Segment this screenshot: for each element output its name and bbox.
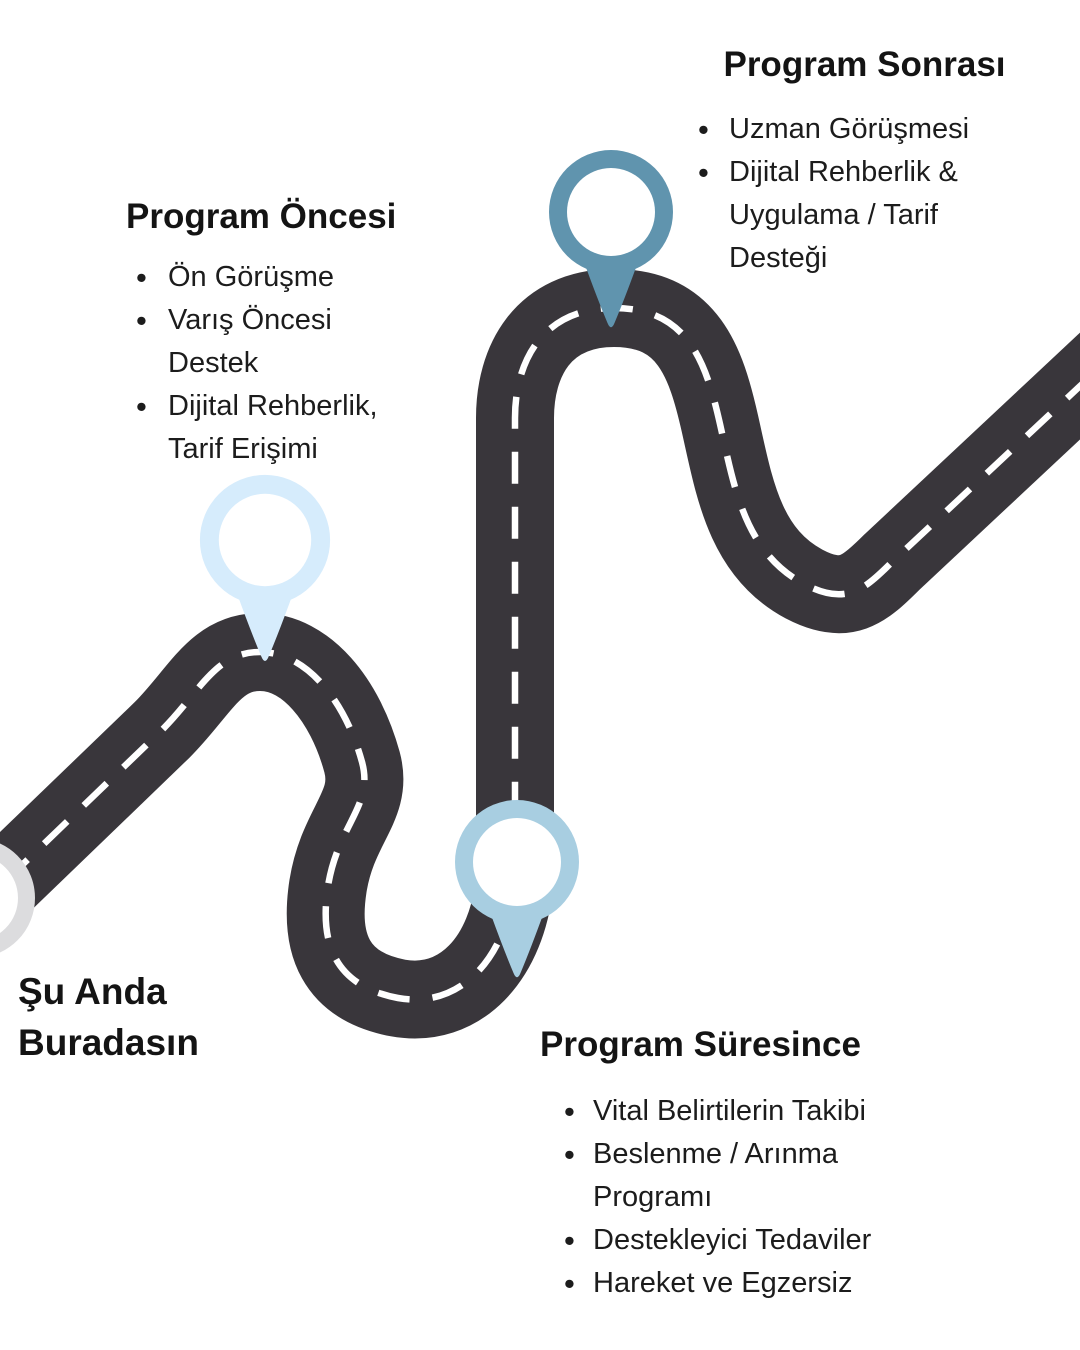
current-location-label: Şu Anda Buradasın (18, 966, 268, 1068)
bullet-item: Dijital Rehberlik & Uygulama / Tarif Des… (692, 151, 1037, 280)
bullet-item: Dijital Rehberlik, Tarif Erişimi (126, 385, 426, 471)
roadmap-canvas: Program Sonrası Uzman GörüşmesiDijital R… (0, 0, 1080, 1350)
section-title-program-suresince: Program Süresince (540, 1024, 940, 1066)
bullet-list-program-sonrasi: Uzman GörüşmesiDijital Rehberlik & Uygul… (692, 108, 1037, 280)
bullet-item: Ön Görüşme (126, 256, 426, 299)
section-title-program-sonrasi: Program Sonrası (692, 44, 1037, 86)
section-title-program-oncesi: Program Öncesi (126, 196, 426, 238)
section-program-suresince: Program Süresince Vital Belirtilerin Tak… (540, 1024, 940, 1305)
bullet-item: Vital Belirtilerin Takibi (540, 1090, 940, 1133)
bullet-list-program-oncesi: Ön GörüşmeVarış Öncesi DestekDijital Reh… (126, 256, 426, 471)
bullet-item: Uzman Görüşmesi (692, 108, 1037, 151)
bullet-item: Beslenme / Arınma Programı (540, 1133, 940, 1219)
bullet-list-program-suresince: Vital Belirtilerin TakibiBeslenme / Arın… (540, 1090, 940, 1305)
section-program-oncesi: Program Öncesi Ön GörüşmeVarış Öncesi De… (126, 196, 426, 471)
bullet-item: Hareket ve Egzersiz (540, 1262, 940, 1305)
bullet-item: Varış Öncesi Destek (126, 299, 426, 385)
start-here-ring (0, 847, 27, 950)
bullet-item: Destekleyici Tedaviler (540, 1219, 940, 1262)
section-program-sonrasi: Program Sonrası Uzman GörüşmesiDijital R… (692, 44, 1037, 280)
